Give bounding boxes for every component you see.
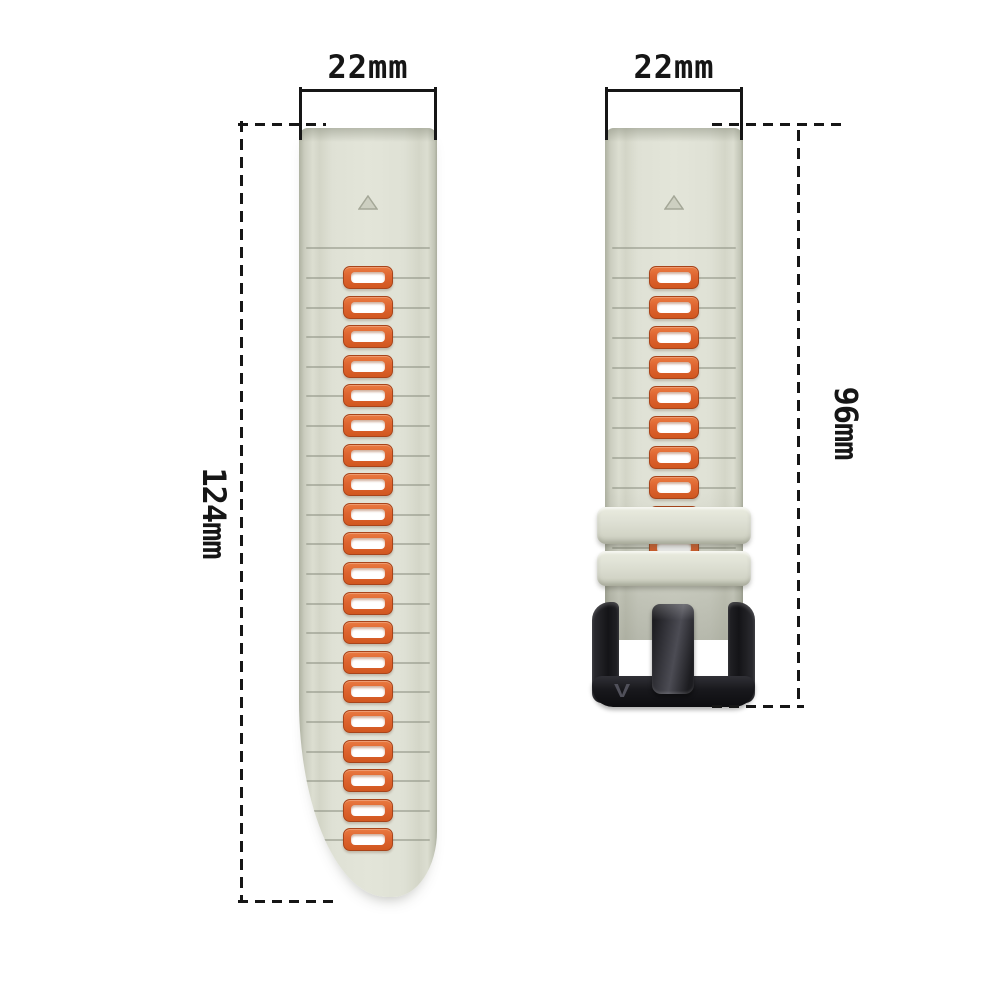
- strap-slot-row: [299, 740, 437, 764]
- strap-slot-hole: [657, 452, 691, 463]
- strap-slot: [343, 532, 393, 555]
- strap-slot-row: [299, 592, 437, 616]
- strap-slot-row: [299, 414, 437, 438]
- strap-slot-row: [299, 444, 437, 468]
- right-width-dimension-line: [605, 89, 743, 92]
- left-strap-width-label: 22mm: [299, 50, 437, 84]
- strap-groove-top: [612, 247, 736, 249]
- strap-slot: [343, 266, 393, 289]
- strap-keeper-2: [597, 551, 751, 586]
- strap-slot-hole: [657, 422, 691, 433]
- dimension-tick: [605, 87, 608, 140]
- strap-slot-hole: [351, 479, 385, 490]
- strap-slot: [343, 562, 393, 585]
- extension-line-bottom-right: [712, 705, 804, 708]
- strap-keeper-1: [597, 507, 751, 544]
- strap-slot-row: [605, 296, 743, 320]
- strap-slot-hole: [351, 627, 385, 638]
- strap-slot-row: [605, 266, 743, 290]
- strap-slot-row: [299, 651, 437, 675]
- strap-slot-hole: [351, 331, 385, 342]
- strap-slot: [649, 386, 699, 409]
- triangle-marker-icon: [664, 195, 684, 210]
- strap-slot-hole: [351, 657, 385, 668]
- strap-slot-hole: [351, 420, 385, 431]
- long-strap: [299, 128, 437, 897]
- strap-slot-row: [299, 710, 437, 734]
- buckle-engraving: V: [614, 682, 630, 700]
- left-strap-length-label: 124mm: [197, 467, 231, 558]
- dimension-tick: [299, 87, 302, 140]
- dimension-tick: [740, 87, 743, 140]
- strap-slot-row: [299, 828, 437, 852]
- strap-slot-row: [299, 562, 437, 586]
- strap-slot: [343, 592, 393, 615]
- strap-slot-hole: [351, 716, 385, 727]
- strap-slot: [343, 414, 393, 437]
- strap-slot-row: [299, 325, 437, 349]
- strap-slot-row: [299, 355, 437, 379]
- strap-slot: [649, 266, 699, 289]
- strap-slot-row: [299, 799, 437, 823]
- strap-slot-hole: [351, 598, 385, 609]
- strap-slot: [343, 503, 393, 526]
- strap-slot-hole: [657, 362, 691, 373]
- dimension-tick: [434, 87, 437, 140]
- strap-slot-hole: [351, 302, 385, 313]
- right-strap-width-label: 22mm: [605, 50, 743, 84]
- strap-slot-hole: [351, 538, 385, 549]
- extension-line-bottom-left: [238, 900, 334, 903]
- triangle-marker-icon: [358, 195, 378, 210]
- strap-slot: [649, 296, 699, 319]
- strap-slot-row: [299, 296, 437, 320]
- strap-slot: [343, 355, 393, 378]
- strap-slot-row: [299, 266, 437, 290]
- strap-slot-hole: [657, 272, 691, 283]
- left-length-dimension-line: [240, 121, 243, 902]
- strap-slot: [649, 356, 699, 379]
- right-length-dimension-line: [797, 130, 800, 707]
- strap-slot: [343, 828, 393, 851]
- strap-slot-row: [299, 473, 437, 497]
- strap-slot-row: [605, 416, 743, 440]
- strap-slot-row: [605, 386, 743, 410]
- strap-slot: [343, 325, 393, 348]
- strap-slot-hole: [351, 834, 385, 845]
- strap-slot-row: [299, 503, 437, 527]
- strap-slot-hole: [351, 450, 385, 461]
- extension-line-top-right: [712, 123, 845, 126]
- strap-slot-hole: [351, 272, 385, 283]
- strap-slot-hole: [351, 361, 385, 372]
- strap-slot-row: [299, 384, 437, 408]
- strap-slot-row: [299, 532, 437, 556]
- strap-slot-hole: [351, 568, 385, 579]
- strap-slot: [649, 416, 699, 439]
- strap-slot-hole: [657, 332, 691, 343]
- strap-slot-hole: [351, 746, 385, 757]
- strap-slot-hole: [351, 805, 385, 816]
- strap-slot-hole: [657, 392, 691, 403]
- right-strap-length-label: 96mm: [829, 386, 863, 459]
- strap-slot: [343, 799, 393, 822]
- strap-slot: [343, 621, 393, 644]
- strap-slot: [343, 473, 393, 496]
- strap-slot-row: [605, 326, 743, 350]
- strap-slot-row: [605, 356, 743, 380]
- strap-slot: [343, 680, 393, 703]
- strap-slot: [649, 326, 699, 349]
- extension-line-top-left: [238, 123, 326, 126]
- buckle: V: [592, 602, 755, 707]
- strap-slot-row: [605, 446, 743, 470]
- strap-slot-hole: [351, 686, 385, 697]
- strap-slot: [649, 446, 699, 469]
- strap-slot: [343, 384, 393, 407]
- strap-slot: [343, 296, 393, 319]
- strap-slot-row: [299, 680, 437, 704]
- strap-groove-top: [306, 247, 430, 249]
- strap-slot: [343, 444, 393, 467]
- watch-strap-dimension-diagram: V 22mm 22mm 124mm 96mm: [0, 0, 1000, 1000]
- strap-slot: [343, 769, 393, 792]
- left-width-dimension-line: [299, 89, 437, 92]
- strap-slot: [343, 651, 393, 674]
- strap-slot-row: [299, 769, 437, 793]
- strap-slot-hole: [657, 302, 691, 313]
- strap-slot-hole: [351, 775, 385, 786]
- strap-slot-hole: [351, 390, 385, 401]
- buckle-prong: [652, 604, 694, 694]
- strap-slot: [343, 740, 393, 763]
- strap-slot-row: [299, 621, 437, 645]
- strap-slot: [343, 710, 393, 733]
- strap-slot-hole: [351, 509, 385, 520]
